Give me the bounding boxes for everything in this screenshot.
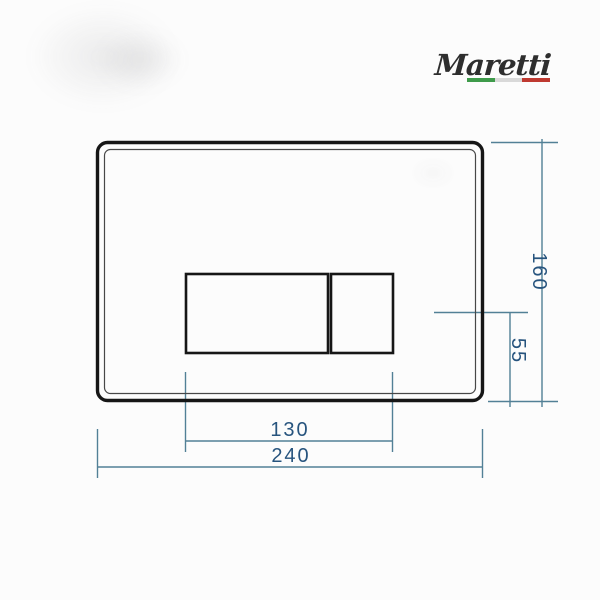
- dimension-label-buttons-width: 130: [270, 419, 309, 441]
- plate-inner-outline: [105, 150, 476, 394]
- flush-button-small: [331, 274, 393, 353]
- dimension-label-overall-width: 240: [271, 445, 310, 467]
- product-diagram-canvas: Maretti 160 55 130 240: [0, 0, 600, 600]
- flush-button-large: [186, 274, 328, 353]
- dimension-label-offset: 55: [507, 338, 529, 364]
- plate-outer-outline: [98, 143, 483, 401]
- dimension-label-height: 160: [528, 252, 550, 291]
- flush-plate-technical-drawing: 160 55 130 240: [0, 0, 600, 600]
